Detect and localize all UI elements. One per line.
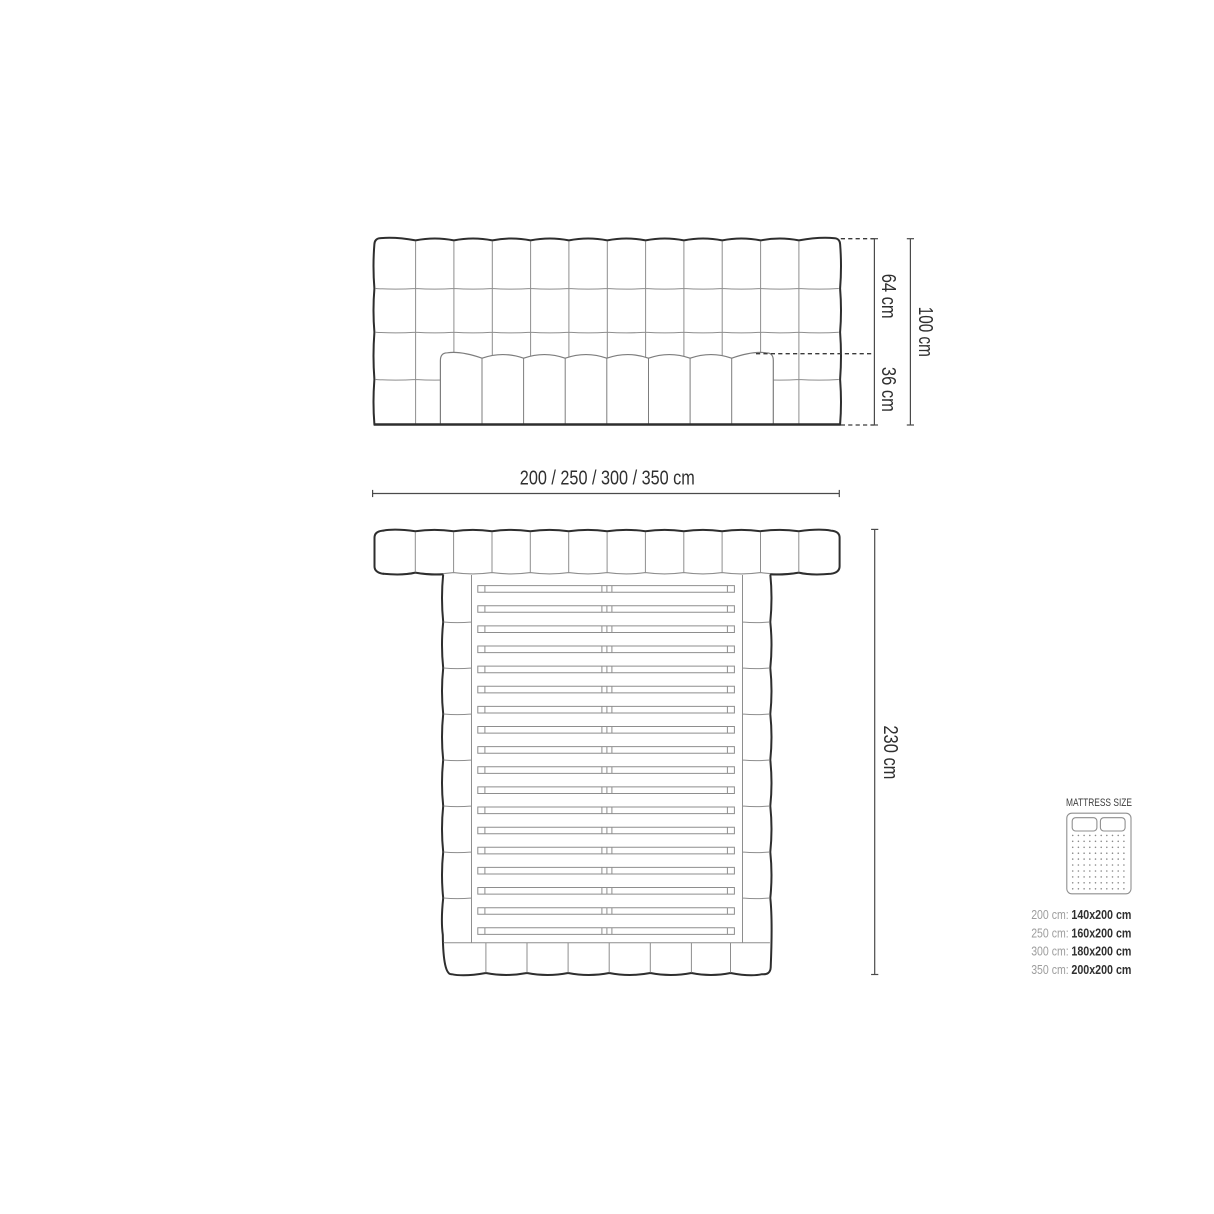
svg-text:100 cm: 100 cm: [914, 307, 936, 357]
svg-text:160x200 cm: 160x200 cm: [1071, 926, 1131, 941]
svg-text:230 cm: 230 cm: [879, 725, 901, 779]
svg-text:36 cm: 36 cm: [877, 367, 899, 412]
svg-text:200 cm:: 200 cm:: [1031, 907, 1069, 922]
svg-text:350 cm:: 350 cm:: [1031, 962, 1069, 977]
svg-text:140x200 cm: 140x200 cm: [1071, 907, 1131, 922]
svg-text:MATTRESS SIZE: MATTRESS SIZE: [1066, 797, 1132, 809]
svg-text:200 / 250 / 300 / 350 cm: 200 / 250 / 300 / 350 cm: [520, 468, 695, 490]
svg-text:300 cm:: 300 cm:: [1031, 943, 1069, 958]
svg-text:200x200 cm: 200x200 cm: [1071, 962, 1131, 977]
svg-text:180x200 cm: 180x200 cm: [1071, 943, 1131, 958]
svg-text:250 cm:: 250 cm:: [1031, 926, 1069, 941]
svg-text:64 cm: 64 cm: [877, 274, 899, 319]
